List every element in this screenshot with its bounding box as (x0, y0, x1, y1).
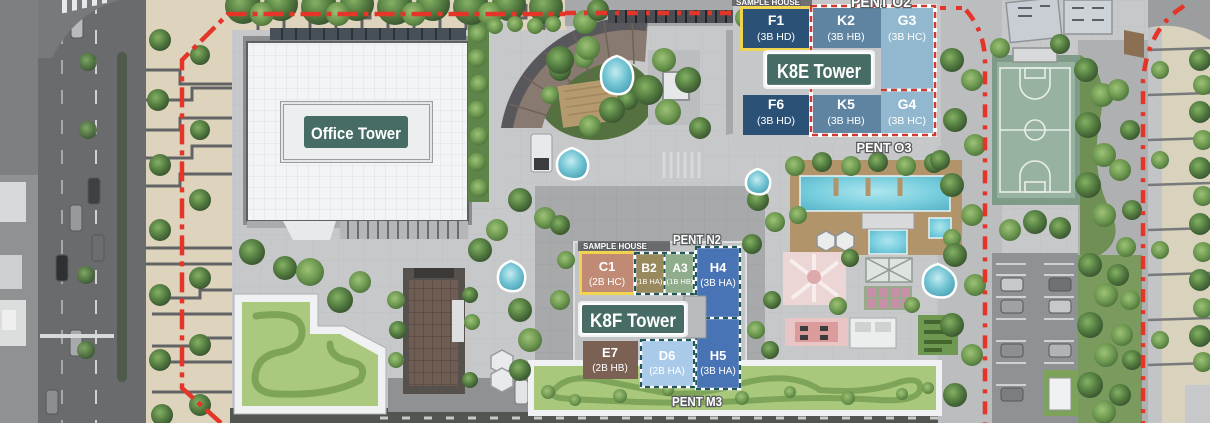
svg-text:K8F Tower: K8F Tower (590, 311, 677, 332)
svg-text:(2B HC): (2B HC) (589, 277, 625, 288)
svg-text:(1B HA): (1B HA) (636, 277, 663, 286)
svg-text:D6: D6 (659, 348, 676, 363)
svg-text:F6: F6 (768, 96, 785, 112)
svg-text:(3B HB): (3B HB) (827, 31, 864, 43)
svg-text:PENT O2: PENT O2 (851, 0, 911, 11)
svg-text:G4: G4 (898, 96, 917, 112)
svg-text:(3B HB): (3B HB) (827, 115, 864, 127)
svg-text:PENT M3: PENT M3 (672, 395, 722, 409)
svg-text:SAMPLE HOUSE: SAMPLE HOUSE (583, 242, 648, 251)
svg-text:(2B HA): (2B HA) (649, 366, 685, 377)
svg-text:E7: E7 (602, 345, 618, 360)
svg-text:PENT N2: PENT N2 (673, 233, 721, 247)
svg-text:B2: B2 (641, 261, 657, 275)
svg-text:(2B HB): (2B HB) (592, 363, 628, 374)
svg-text:F1: F1 (768, 12, 785, 28)
svg-text:(3B HA): (3B HA) (700, 366, 736, 377)
svg-text:(1B HB): (1B HB) (667, 277, 694, 286)
svg-text:H4: H4 (710, 260, 727, 275)
svg-text:(3B HA): (3B HA) (700, 278, 736, 289)
svg-text:K2: K2 (837, 12, 855, 28)
svg-text:K5: K5 (837, 96, 855, 112)
svg-text:PENT O3: PENT O3 (857, 140, 912, 155)
svg-text:C1: C1 (599, 259, 616, 274)
svg-text:G3: G3 (898, 12, 917, 28)
svg-text:(3B HC): (3B HC) (888, 115, 926, 127)
svg-text:SAMPLE HOUSE: SAMPLE HOUSE (736, 0, 801, 7)
svg-text:(3B HD): (3B HD) (757, 31, 795, 43)
svg-text:K8E Tower: K8E Tower (777, 61, 861, 83)
svg-text:(3B HC): (3B HC) (888, 31, 926, 43)
svg-text:A3: A3 (672, 261, 688, 275)
svg-text:(3B HD): (3B HD) (757, 115, 795, 127)
svg-text:H5: H5 (710, 348, 727, 363)
svg-text:Office Tower: Office Tower (311, 124, 401, 143)
